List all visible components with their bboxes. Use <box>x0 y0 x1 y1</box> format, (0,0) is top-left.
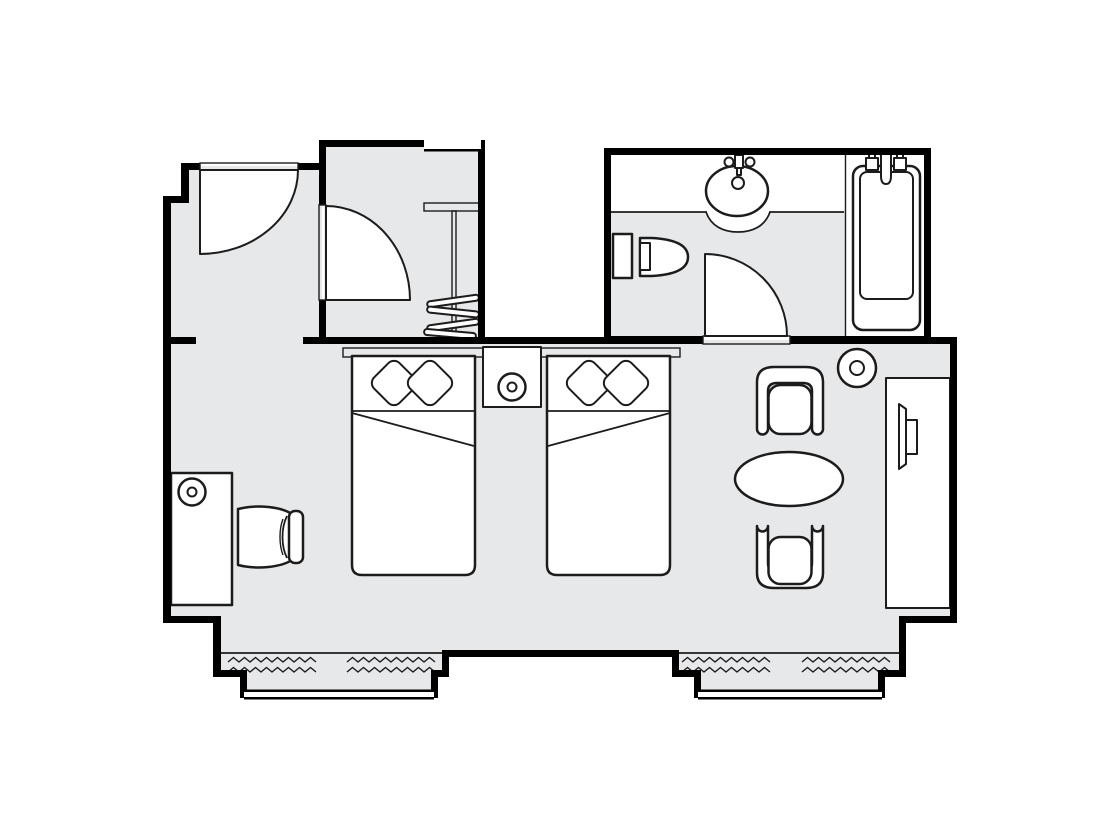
tub-spout-icon <box>881 153 891 184</box>
tv-icon: Television <box>899 404 906 469</box>
wall-segment <box>604 336 703 344</box>
oval-table: Oval table <box>735 452 843 506</box>
nightstand: Nightstand with lamp <box>483 347 541 407</box>
sink-drain-icon <box>732 177 744 189</box>
wall-segment <box>924 148 931 344</box>
wall-segment <box>950 337 957 623</box>
tv-icon <box>906 420 917 454</box>
armchair-upper: Armchair upper <box>757 367 823 435</box>
bed-left: Twin bed left with two pillows <box>352 356 475 575</box>
desk-lamp-icon <box>188 488 197 497</box>
wall-segment <box>899 616 906 677</box>
floor-bottom-strip <box>218 621 902 653</box>
floor-left-bay <box>218 653 444 677</box>
bed-right: Twin bed right with two pillows <box>547 356 670 575</box>
wall-segment <box>604 148 611 344</box>
desk: Desk Desk lamp <box>171 473 232 605</box>
wall-segment <box>319 300 326 344</box>
floor-plan-drawing: Hotel room floor plan Entry hall Bedroom… <box>0 0 1120 840</box>
lamp-icon <box>508 383 517 392</box>
faucet-handle-icon <box>725 158 734 167</box>
wall-segment <box>163 616 220 623</box>
faucet-handle-icon <box>746 158 755 167</box>
desk-chair: Desk chair <box>238 507 303 568</box>
tub-handle-icon <box>866 158 878 170</box>
wall-segment <box>442 650 679 657</box>
floor-right-bay <box>676 653 902 677</box>
sink-faucet-icon <box>735 155 743 168</box>
wall-segment <box>163 196 171 623</box>
wall-segment <box>319 140 326 205</box>
wall-segment <box>163 337 196 344</box>
bay-window-left: Bay window left <box>244 690 434 700</box>
wall-segment <box>899 616 957 623</box>
tub-handle-icon <box>894 158 906 170</box>
bay-window-right: Bay window right <box>698 690 882 700</box>
bathtub: Bathtub with faucet <box>853 151 920 330</box>
wall-segment <box>604 148 931 155</box>
wall-segment <box>213 616 221 677</box>
closet-top-recess <box>424 140 481 152</box>
sink-faucet-icon <box>737 168 741 175</box>
wall-segment <box>478 140 485 344</box>
wall-segment <box>790 336 931 344</box>
floor-plan-page: Hotel room floor plan Entry hall Bedroom… <box>0 0 1120 840</box>
tv-cabinet: TV cabinet Television <box>886 378 950 608</box>
floor-lamp: Floor lamp <box>838 349 876 387</box>
